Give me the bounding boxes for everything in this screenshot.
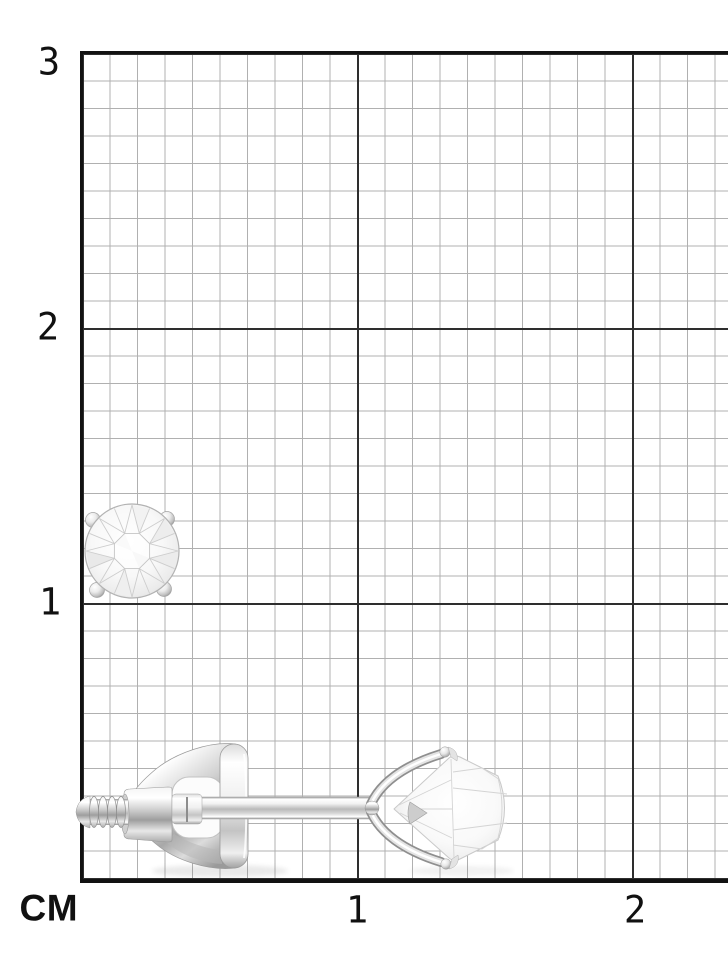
y-axis-label-2cm: 2 — [37, 309, 59, 346]
size-chart-page: { "ruler": { "unit_label": "СМ", "y_labe… — [0, 0, 728, 970]
grid-border-top — [82, 51, 728, 54]
diamond-stud-front-image — [76, 496, 188, 608]
y-axis-label-3cm: 3 — [38, 44, 60, 81]
head-shadow — [410, 866, 514, 876]
y-axis-label-1cm: 1 — [39, 584, 61, 621]
diamond-stud-side-image — [70, 738, 515, 880]
unit-label-cm: СМ — [19, 890, 78, 927]
ear-post-icon — [180, 797, 375, 819]
diamond-face-icon — [85, 504, 179, 598]
x-axis-label-1cm: 1 — [346, 892, 368, 929]
x-axis-label-2cm: 2 — [624, 892, 646, 929]
screw-thread-icon — [76, 796, 128, 828]
